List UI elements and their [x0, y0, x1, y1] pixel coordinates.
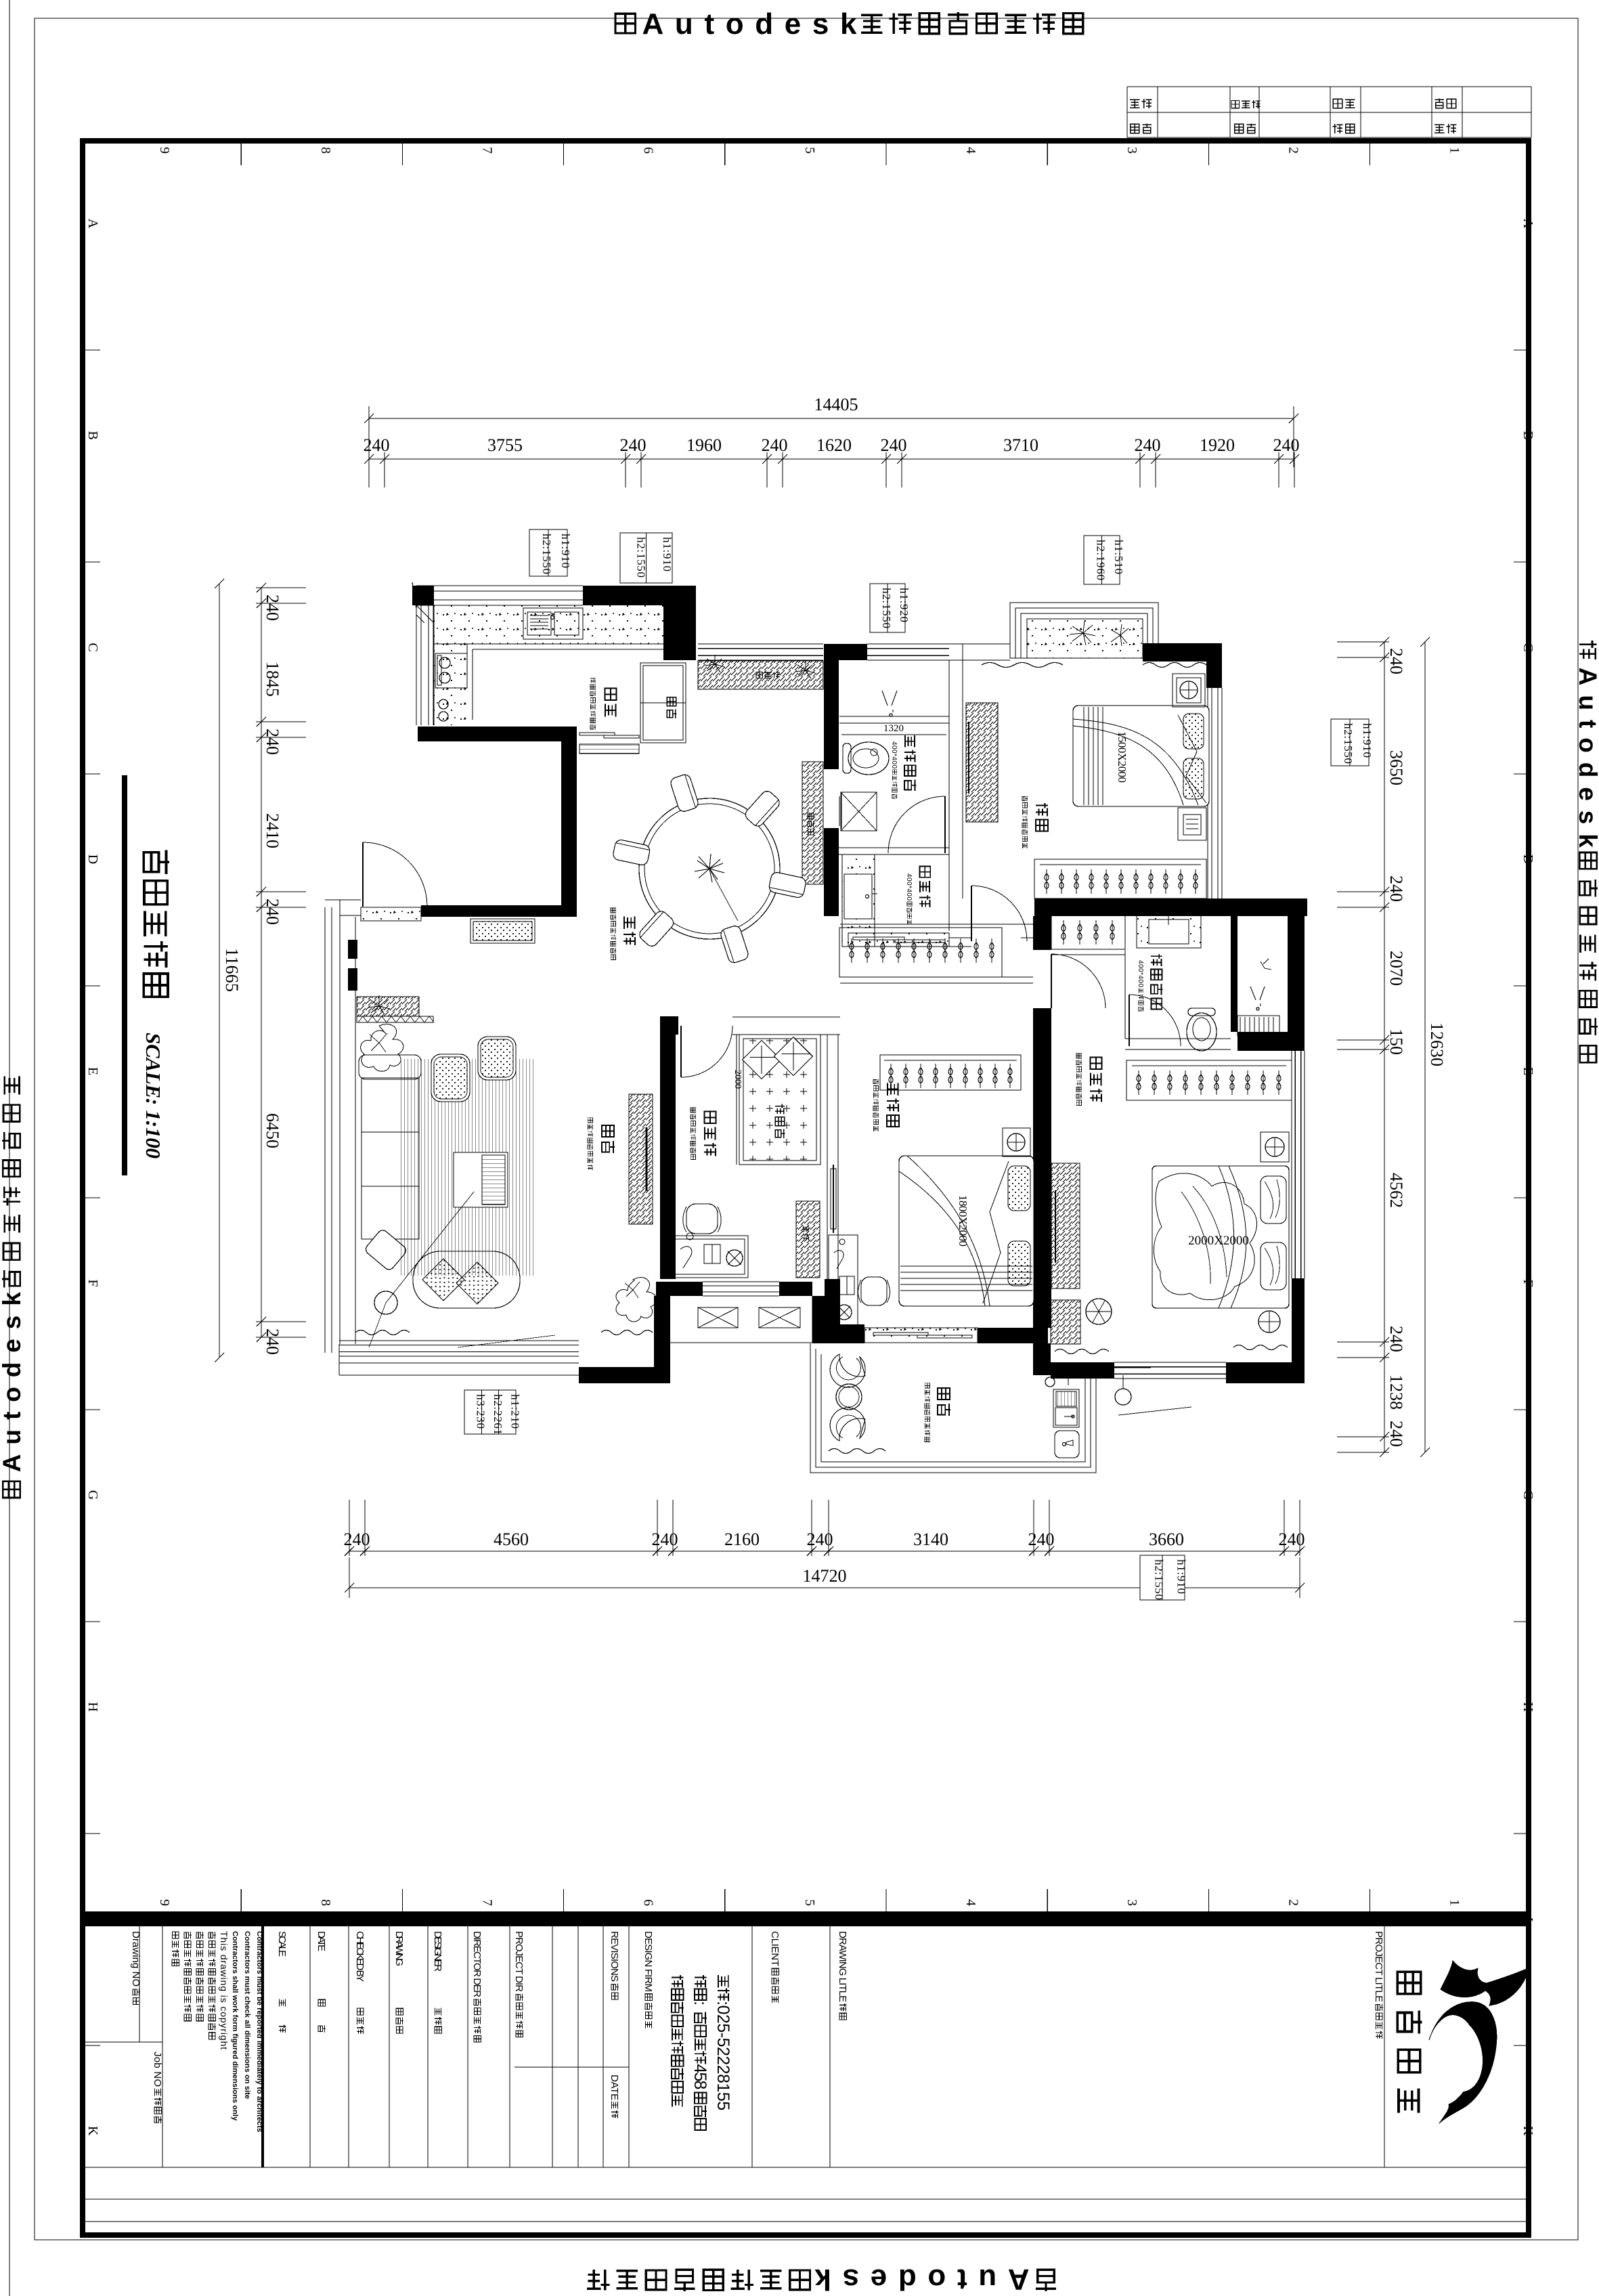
svg-text:CHECKED BY: CHECKED BY — [354, 1931, 366, 1982]
svg-text:G: G — [85, 1490, 100, 1500]
svg-text:D: D — [1520, 854, 1535, 864]
svg-text:h2:1550: h2:1550 — [1153, 1559, 1166, 1600]
svg-text:11665: 11665 — [222, 948, 242, 992]
svg-text:1500X2000: 1500X2000 — [1116, 731, 1129, 783]
svg-text:240: 240 — [1386, 875, 1406, 902]
svg-text:F: F — [85, 1279, 100, 1286]
svg-text:240: 240 — [881, 435, 907, 455]
svg-text:4: 4 — [963, 1899, 978, 1906]
svg-text::025-52228155: :025-52228155 — [714, 2001, 732, 2110]
svg-text:2000X2000: 2000X2000 — [1188, 1234, 1249, 1248]
svg-text:3710: 3710 — [1003, 435, 1038, 455]
svg-text:2070: 2070 — [1386, 951, 1406, 986]
svg-text:240: 240 — [762, 435, 788, 455]
svg-text:9: 9 — [157, 1899, 172, 1906]
svg-text:4560: 4560 — [494, 1530, 529, 1549]
svg-text:CLIENT: CLIENT — [769, 1931, 781, 1966]
svg-text:DATE: DATE — [609, 2075, 620, 2100]
svg-text:240: 240 — [1028, 1530, 1055, 1549]
svg-text:2: 2 — [1286, 147, 1300, 154]
svg-text:h1:910: h1:910 — [661, 537, 674, 571]
svg-text:J: J — [1520, 1916, 1535, 1922]
svg-text:SCALE: SCALE — [276, 1931, 288, 1957]
svg-text:240: 240 — [652, 1530, 678, 1549]
svg-text:B: B — [1520, 431, 1535, 439]
svg-text:K: K — [1520, 2126, 1535, 2136]
svg-text:PROJECT LITLE: PROJECT LITLE — [1373, 1931, 1384, 2002]
svg-text:3: 3 — [1124, 147, 1139, 154]
svg-text:REVISIONS: REVISIONS — [609, 1931, 620, 1982]
svg-text:2: 2 — [1286, 1899, 1300, 1906]
svg-text:Contractors must be reported i: Contractors must be reported immediately… — [255, 1931, 263, 2132]
svg-text:1: 1 — [1447, 1899, 1462, 1906]
svg-text::: : — [691, 2001, 709, 2006]
svg-text:h2:1550: h2:1550 — [634, 537, 647, 578]
svg-text:E: E — [1520, 1067, 1535, 1075]
svg-text:h1:910: h1:910 — [1361, 723, 1374, 758]
svg-text:240: 240 — [620, 435, 647, 455]
svg-text:5: 5 — [802, 1899, 817, 1906]
svg-text:F: F — [1520, 1279, 1535, 1286]
svg-text:5: 5 — [802, 147, 817, 154]
svg-text:240: 240 — [807, 1530, 833, 1549]
svg-text:C: C — [1520, 643, 1535, 651]
svg-text:1320: 1320 — [883, 723, 904, 734]
svg-text:D: D — [85, 854, 100, 864]
svg-text:240: 240 — [263, 729, 282, 755]
svg-text:400*400: 400*400 — [905, 873, 913, 901]
svg-text:Job NO: Job NO — [152, 2052, 163, 2087]
svg-text:240: 240 — [1279, 1530, 1305, 1549]
svg-text:240: 240 — [344, 1530, 370, 1549]
svg-text:DIRECTOR DER: DIRECTOR DER — [471, 1931, 483, 1997]
svg-text:4562: 4562 — [1386, 1173, 1406, 1208]
svg-text:6: 6 — [641, 1899, 656, 1906]
svg-text:H: H — [1520, 1702, 1535, 1712]
svg-text:3660: 3660 — [1149, 1530, 1184, 1549]
svg-text:3755: 3755 — [487, 435, 523, 455]
svg-text:1845: 1845 — [263, 662, 282, 697]
svg-text:DRAWING: DRAWING — [393, 1931, 405, 1966]
svg-text:7: 7 — [479, 147, 494, 154]
svg-text:3140: 3140 — [913, 1530, 948, 1549]
svg-text:C: C — [85, 643, 100, 651]
svg-text:h2:2261: h2:2261 — [491, 1394, 504, 1435]
svg-text:240: 240 — [1135, 435, 1161, 455]
svg-text:240: 240 — [1386, 1326, 1406, 1352]
svg-text:1238: 1238 — [1386, 1374, 1406, 1410]
svg-text:1800X2000: 1800X2000 — [957, 1195, 969, 1247]
svg-text:240: 240 — [364, 435, 390, 455]
svg-text:Contractors must check all dim: Contractors must check all dimensions on… — [243, 1931, 251, 2099]
svg-text:K: K — [85, 2126, 100, 2136]
svg-text:2000: 2000 — [732, 1070, 743, 1089]
svg-text:PROJECT DIR: PROJECT DIR — [513, 1931, 525, 1992]
svg-text:8: 8 — [318, 1899, 333, 1906]
svg-text:A: A — [85, 219, 100, 229]
svg-text:400*400: 400*400 — [1137, 960, 1144, 987]
svg-text:458: 458 — [691, 2064, 709, 2089]
svg-text:3650: 3650 — [1386, 750, 1406, 785]
svg-text:240: 240 — [263, 594, 282, 621]
svg-text:1920: 1920 — [1200, 435, 1235, 455]
svg-text:A: A — [1520, 219, 1535, 229]
svg-text:h1:210: h1:210 — [508, 1394, 521, 1429]
svg-text:h2:1550: h2:1550 — [1342, 723, 1355, 764]
svg-text:150: 150 — [1386, 1028, 1406, 1055]
svg-text:h1:910: h1:910 — [559, 534, 572, 568]
svg-text:This drawing is copyright: This drawing is copyright — [219, 1931, 229, 2050]
svg-text:Drawing NO: Drawing NO — [130, 1931, 141, 1987]
svg-text:H: H — [85, 1702, 100, 1712]
svg-text:6: 6 — [641, 147, 656, 154]
svg-text:240: 240 — [1386, 648, 1406, 674]
svg-text:12630: 12630 — [1427, 1022, 1447, 1066]
svg-text:240: 240 — [1386, 1421, 1406, 1447]
svg-text:14405: 14405 — [814, 395, 858, 414]
svg-text:9: 9 — [157, 147, 172, 154]
svg-text:SCALE: 1:100: SCALE: 1:100 — [141, 1033, 165, 1158]
svg-text:B: B — [85, 431, 100, 439]
svg-text:h1:920: h1:920 — [898, 588, 911, 622]
svg-text:1: 1 — [1447, 147, 1462, 154]
svg-text:240: 240 — [1273, 435, 1300, 455]
svg-text:400*400: 400*400 — [890, 741, 898, 768]
svg-text:h2:1550: h2:1550 — [880, 588, 893, 628]
svg-text:2410: 2410 — [263, 813, 282, 848]
svg-text:1960: 1960 — [686, 435, 722, 455]
svg-text:Contractors shall work form fi: Contractors shall work form figured dime… — [231, 1931, 239, 2121]
svg-text:DESIGN FIRM: DESIGN FIRM — [642, 1931, 654, 1992]
svg-text:3: 3 — [1124, 1899, 1139, 1906]
svg-text:h1:510: h1:510 — [1112, 540, 1125, 574]
svg-text:240: 240 — [263, 898, 282, 925]
svg-text:7: 7 — [479, 1899, 494, 1906]
svg-text:h3:230: h3:230 — [475, 1394, 487, 1429]
svg-text:G: G — [1520, 1490, 1535, 1500]
svg-text:1620: 1620 — [816, 435, 852, 455]
svg-text:6450: 6450 — [263, 1113, 282, 1148]
svg-text:240: 240 — [263, 1328, 282, 1355]
svg-text:h1:910: h1:910 — [1175, 1559, 1188, 1594]
svg-text:2160: 2160 — [724, 1530, 760, 1549]
svg-text:DRAWING LITLE: DRAWING LITLE — [837, 1931, 848, 2002]
svg-text:14720: 14720 — [803, 1566, 847, 1586]
svg-text:DESIGNER: DESIGNER — [432, 1931, 443, 1972]
svg-text:8: 8 — [318, 147, 333, 154]
svg-text:4: 4 — [963, 147, 978, 154]
svg-text:DATE: DATE — [315, 1931, 327, 1951]
svg-text:h2:1550: h2:1550 — [540, 534, 553, 574]
svg-text:J: J — [85, 1916, 100, 1922]
svg-text:h2:1960: h2:1960 — [1094, 540, 1107, 580]
svg-text:E: E — [85, 1067, 100, 1075]
